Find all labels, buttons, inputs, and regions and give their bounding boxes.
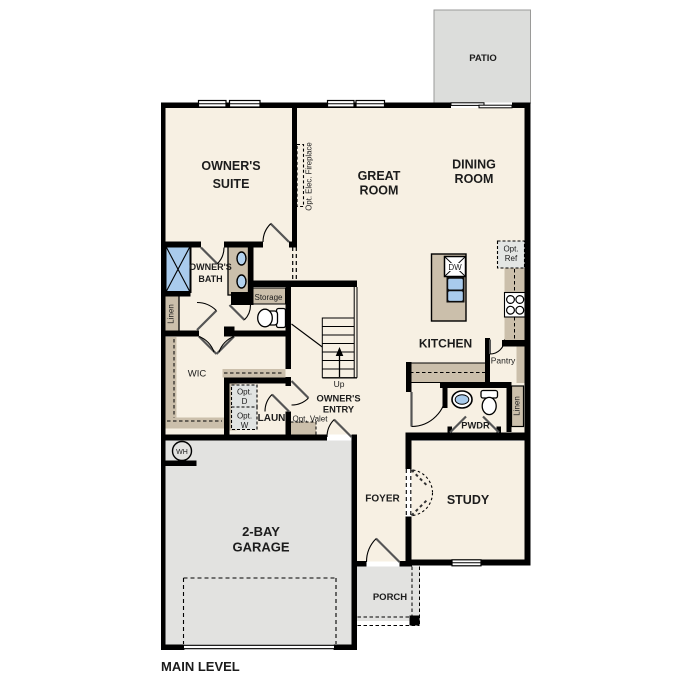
svg-text:KITCHEN: KITCHEN — [419, 337, 472, 351]
svg-text:Linen: Linen — [513, 396, 522, 416]
svg-text:SUITE: SUITE — [213, 177, 250, 191]
svg-text:Opt. Elec. Fireplace: Opt. Elec. Fireplace — [305, 142, 314, 210]
svg-text:D: D — [242, 397, 248, 406]
svg-text:OWNER'S: OWNER'S — [316, 394, 360, 404]
svg-text:DINING: DINING — [452, 158, 496, 172]
svg-text:DW: DW — [448, 263, 462, 272]
svg-text:ROOM: ROOM — [455, 172, 494, 186]
svg-text:GARAGE: GARAGE — [232, 540, 289, 555]
svg-text:WH: WH — [176, 449, 188, 456]
svg-text:LAUN: LAUN — [258, 413, 286, 424]
svg-text:PATIO: PATIO — [469, 53, 497, 64]
svg-text:W: W — [241, 421, 249, 430]
svg-text:Storage: Storage — [254, 293, 283, 302]
svg-text:PORCH: PORCH — [373, 592, 407, 603]
svg-text:ROOM: ROOM — [360, 184, 399, 198]
svg-text:OWNER'S: OWNER'S — [201, 159, 260, 173]
svg-text:Up: Up — [334, 379, 345, 389]
svg-text:MAIN LEVEL: MAIN LEVEL — [161, 659, 240, 674]
svg-text:BATH: BATH — [198, 274, 222, 284]
svg-text:2-BAY: 2-BAY — [242, 524, 280, 539]
svg-text:OWNER'S: OWNER'S — [189, 262, 232, 272]
svg-text:Opt.: Opt. — [503, 245, 518, 254]
svg-text:PWDR: PWDR — [461, 421, 490, 431]
svg-text:WIC: WIC — [188, 369, 207, 380]
svg-text:Opt. Valet: Opt. Valet — [293, 415, 329, 424]
svg-text:FOYER: FOYER — [365, 494, 400, 505]
svg-text:Pantry: Pantry — [491, 356, 516, 366]
svg-text:GREAT: GREAT — [358, 169, 401, 183]
svg-text:STUDY: STUDY — [447, 493, 490, 507]
svg-text:ENTRY: ENTRY — [323, 405, 355, 415]
svg-text:Linen: Linen — [167, 304, 176, 324]
svg-text:Opt.: Opt. — [237, 412, 252, 421]
svg-text:Ref: Ref — [505, 254, 518, 263]
svg-text:Opt.: Opt. — [237, 388, 252, 397]
